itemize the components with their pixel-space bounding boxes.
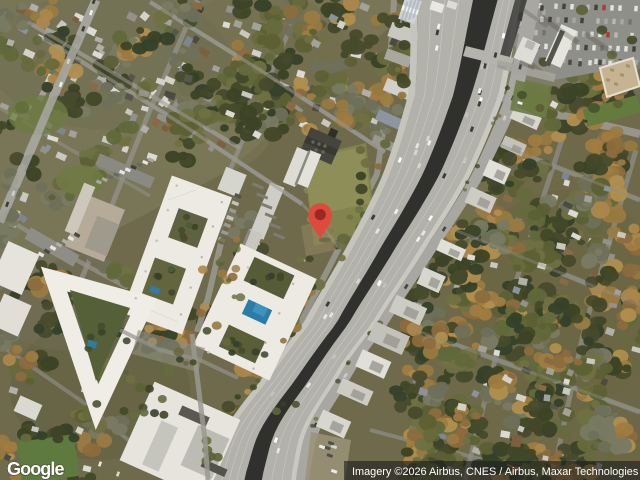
svg-text:Google: Google [7,459,64,479]
svg-text:Imagery ©2026 Airbus, CNES / A: Imagery ©2026 Airbus, CNES / Airbus, Max… [352,466,639,478]
